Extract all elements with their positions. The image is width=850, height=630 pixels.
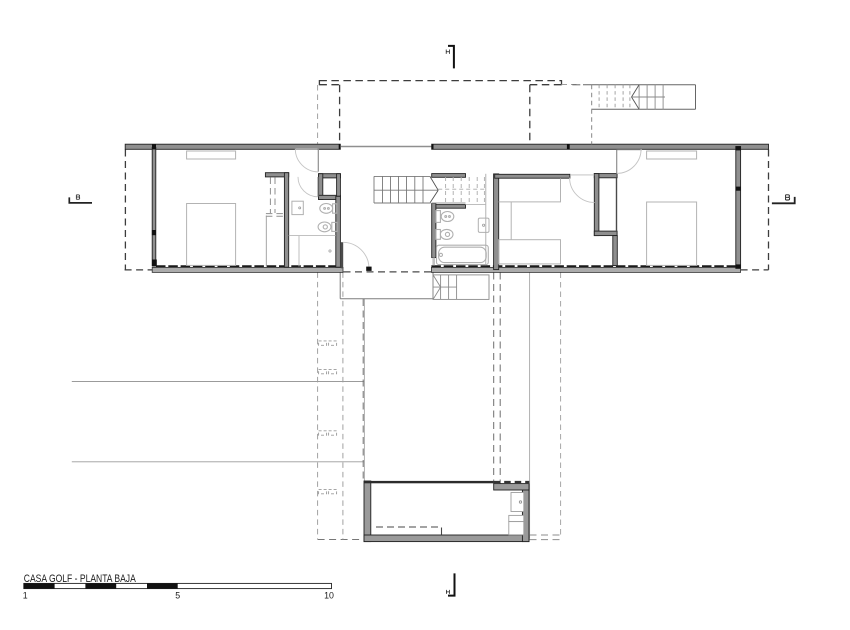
svg-text:5: 5 xyxy=(175,591,180,601)
svg-text:1: 1 xyxy=(23,591,28,601)
svg-text:10: 10 xyxy=(324,591,334,601)
